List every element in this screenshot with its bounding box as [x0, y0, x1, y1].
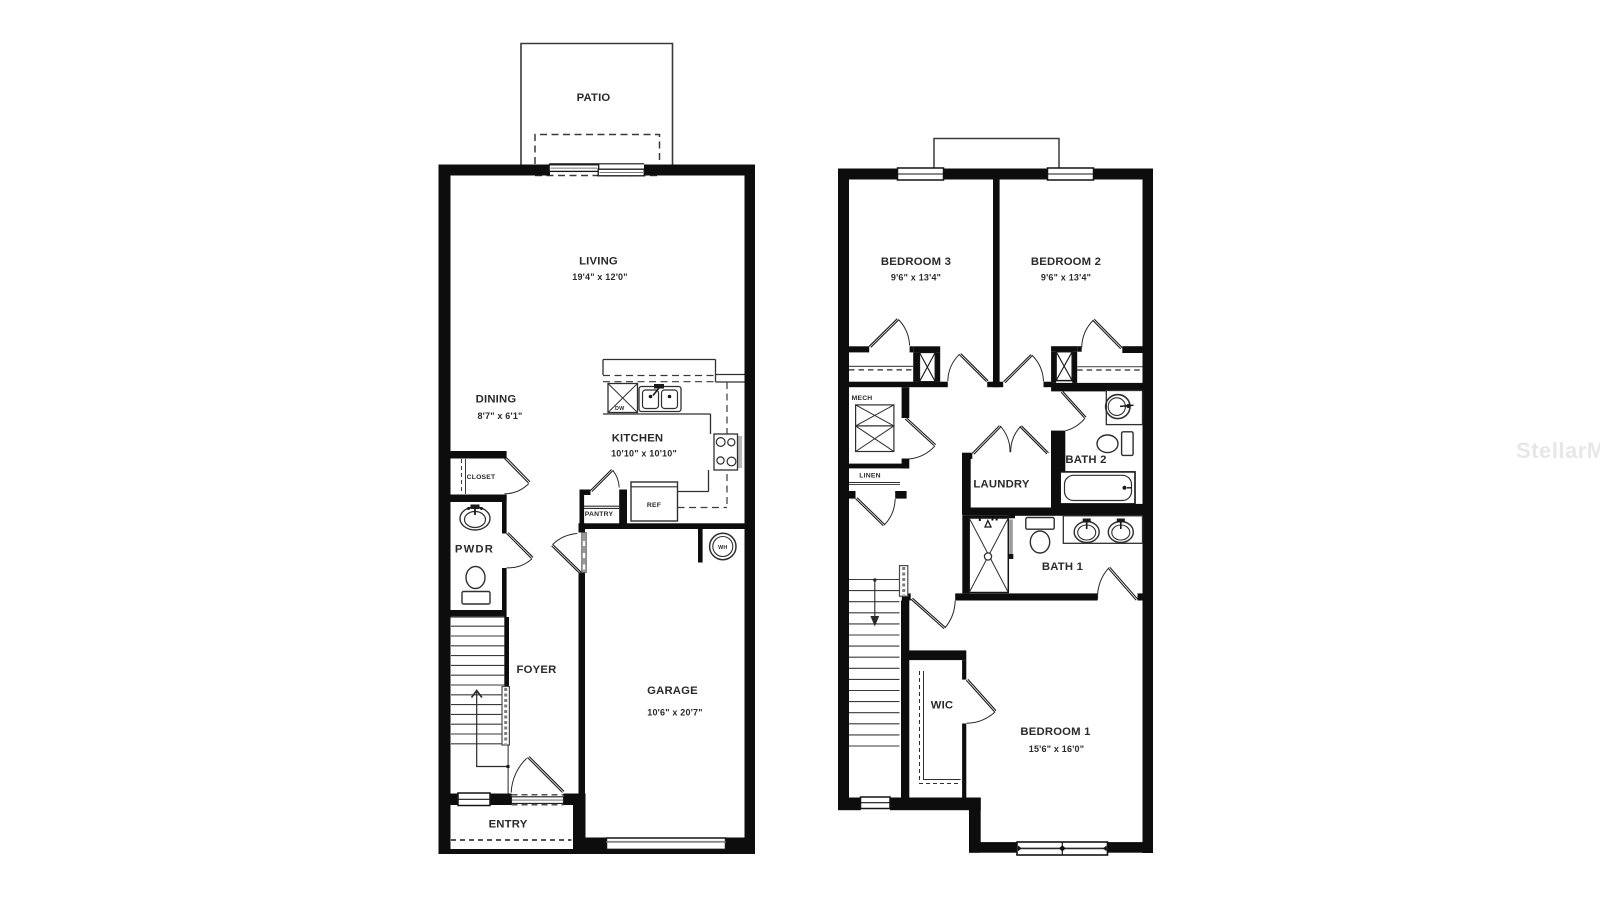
svg-text:ENTRY: ENTRY [489, 819, 528, 831]
svg-text:LAUNDRY: LAUNDRY [973, 479, 1029, 491]
svg-text:FOYER: FOYER [517, 664, 557, 676]
svg-text:BATH 1: BATH 1 [1042, 561, 1083, 573]
svg-text:15'6" x 16'0": 15'6" x 16'0" [1029, 744, 1084, 754]
svg-text:REF: REF [647, 502, 661, 509]
svg-text:BEDROOM 2: BEDROOM 2 [1031, 256, 1101, 268]
svg-text:9'6" x 13'4": 9'6" x 13'4" [891, 273, 941, 283]
svg-text:MECH: MECH [852, 395, 873, 402]
svg-text:KITCHEN: KITCHEN [612, 433, 664, 445]
svg-text:PWDR: PWDR [455, 544, 494, 556]
svg-text:WH: WH [718, 545, 727, 551]
svg-text:10'6" x 20'7": 10'6" x 20'7" [647, 708, 702, 718]
svg-text:PANTRY: PANTRY [585, 511, 614, 518]
svg-text:PATIO: PATIO [577, 92, 611, 104]
svg-text:BEDROOM 1: BEDROOM 1 [1020, 726, 1090, 738]
svg-text:LIVING: LIVING [579, 256, 618, 268]
svg-text:StellarMLS: StellarMLS [1516, 438, 1600, 463]
svg-text:8'7" x 6'1": 8'7" x 6'1" [477, 411, 522, 421]
svg-text:9'6" x 13'4": 9'6" x 13'4" [1041, 273, 1091, 283]
svg-text:CLOSET: CLOSET [467, 474, 496, 481]
svg-text:DINING: DINING [476, 394, 517, 406]
svg-text:BATH 2: BATH 2 [1065, 454, 1106, 466]
svg-text:LINEN: LINEN [859, 473, 880, 480]
svg-text:10'10" x 10'10": 10'10" x 10'10" [611, 449, 677, 459]
svg-text:BEDROOM 3: BEDROOM 3 [881, 256, 951, 268]
svg-text:DW: DW [615, 406, 625, 412]
svg-text:GARAGE: GARAGE [647, 685, 698, 697]
svg-text:19'4" x 12'0": 19'4" x 12'0" [572, 272, 627, 282]
svg-text:WIC: WIC [931, 700, 954, 712]
